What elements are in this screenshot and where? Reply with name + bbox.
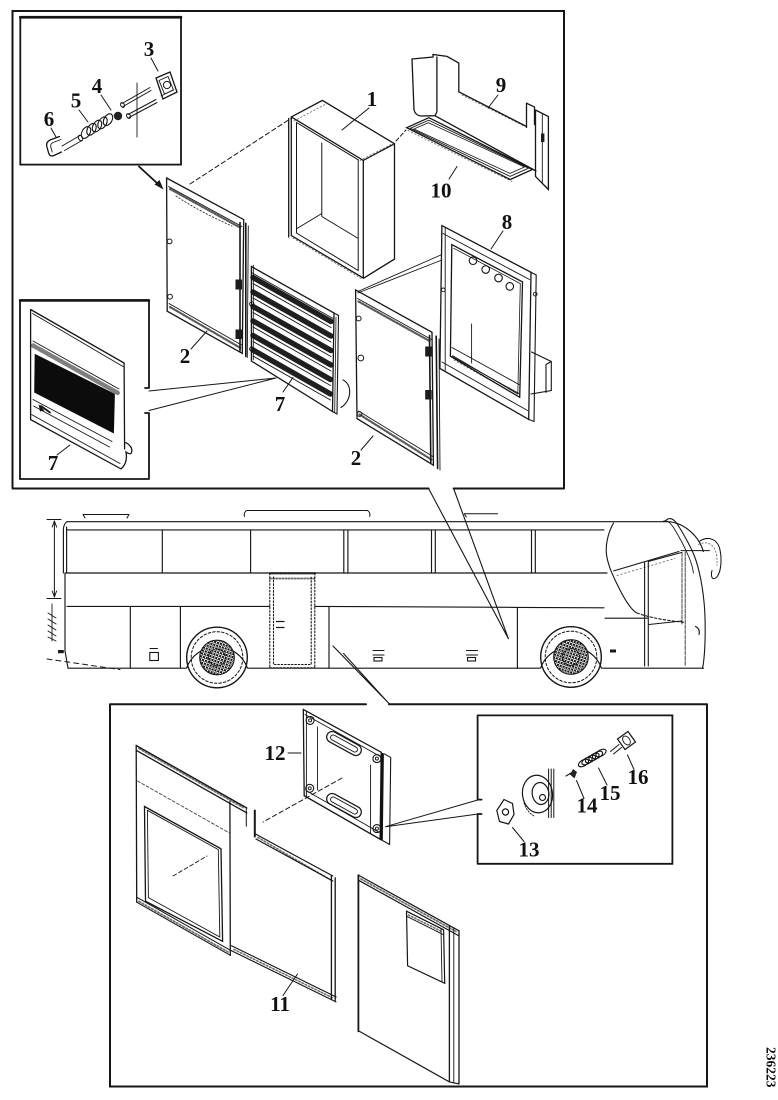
svg-text:2: 2 — [180, 344, 191, 368]
svg-text:8: 8 — [502, 210, 513, 234]
svg-text:9: 9 — [496, 73, 507, 97]
svg-text:4: 4 — [92, 74, 103, 98]
svg-text:2: 2 — [351, 446, 362, 470]
svg-text:15: 15 — [600, 781, 621, 805]
svg-text:14: 14 — [577, 794, 599, 818]
svg-text:236223: 236223 — [764, 1047, 778, 1088]
svg-text:3: 3 — [144, 37, 155, 61]
svg-text:1: 1 — [367, 87, 378, 111]
svg-text:11: 11 — [270, 992, 290, 1016]
svg-text:10: 10 — [431, 179, 452, 203]
svg-text:16: 16 — [628, 765, 649, 789]
svg-text:6: 6 — [44, 107, 55, 131]
svg-text:7: 7 — [275, 392, 286, 416]
svg-text:7: 7 — [48, 451, 59, 475]
svg-text:13: 13 — [519, 838, 540, 862]
svg-text:12: 12 — [265, 741, 286, 765]
svg-text:5: 5 — [71, 89, 82, 113]
